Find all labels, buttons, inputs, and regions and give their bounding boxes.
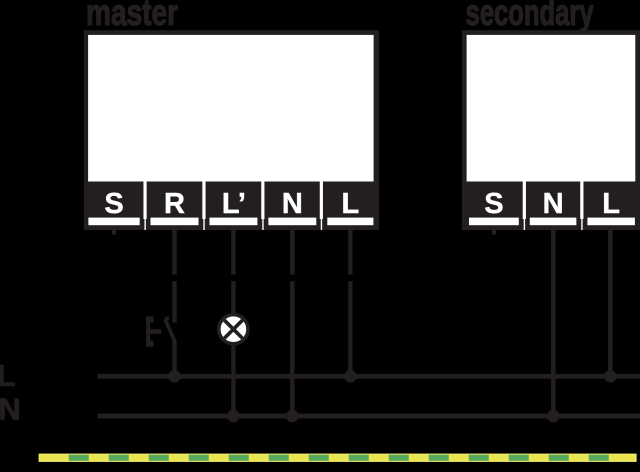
svg-text:N: N — [282, 188, 303, 220]
svg-text:secondary: secondary — [466, 0, 594, 33]
svg-text:L: L — [342, 188, 360, 220]
svg-text:N: N — [543, 188, 564, 220]
svg-text:S: S — [484, 188, 503, 220]
svg-text:N: N — [0, 392, 21, 427]
svg-text:S: S — [104, 188, 123, 220]
svg-text:L: L — [602, 188, 620, 220]
svg-text:L: L — [0, 358, 16, 393]
svg-text:master: master — [86, 0, 178, 33]
svg-text:L’: L’ — [222, 188, 246, 220]
svg-text:R: R — [164, 188, 185, 220]
